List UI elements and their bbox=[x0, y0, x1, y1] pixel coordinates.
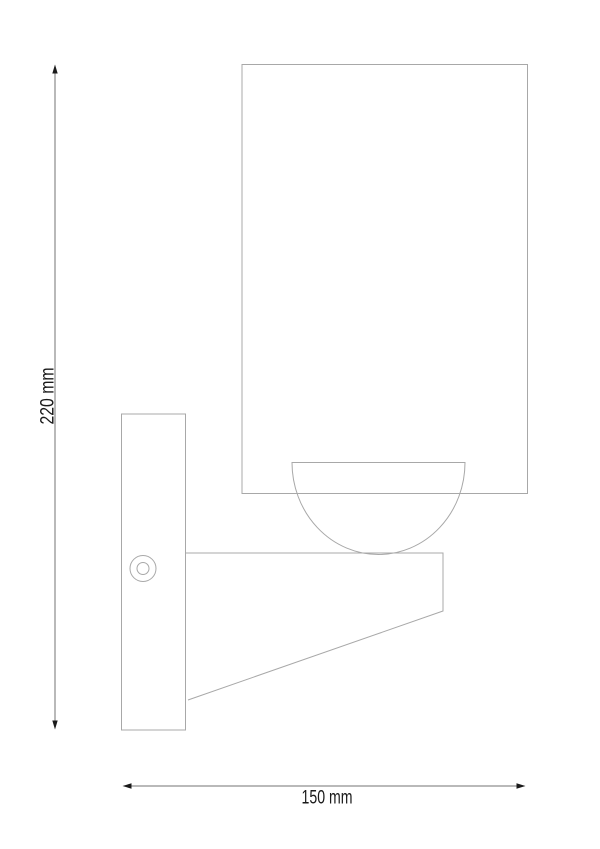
mounting-screw-inner bbox=[137, 563, 149, 575]
mounting-screw-outer bbox=[130, 556, 156, 582]
height-dimension: 220 mm bbox=[38, 65, 59, 730]
width-dimension-label: 150 mm bbox=[302, 788, 353, 809]
object-outlines bbox=[122, 65, 528, 731]
width-dimension: 150 mm bbox=[123, 783, 526, 808]
lampshade-outline bbox=[242, 65, 528, 494]
technical-drawing-page: 220 mm 150 mm bbox=[0, 0, 600, 849]
wall-lamp-dimension-drawing: 220 mm 150 mm bbox=[0, 0, 600, 849]
arrow-up-icon bbox=[52, 65, 57, 74]
arrow-down-icon bbox=[52, 721, 57, 730]
bracket-arm-outline bbox=[186, 553, 444, 700]
height-dimension-label: 220 mm bbox=[38, 368, 59, 425]
arrow-left-icon bbox=[123, 783, 132, 788]
arrow-right-icon bbox=[517, 783, 526, 788]
diffuser-dome-outline bbox=[292, 463, 465, 555]
wall-plate-outline bbox=[122, 414, 186, 730]
